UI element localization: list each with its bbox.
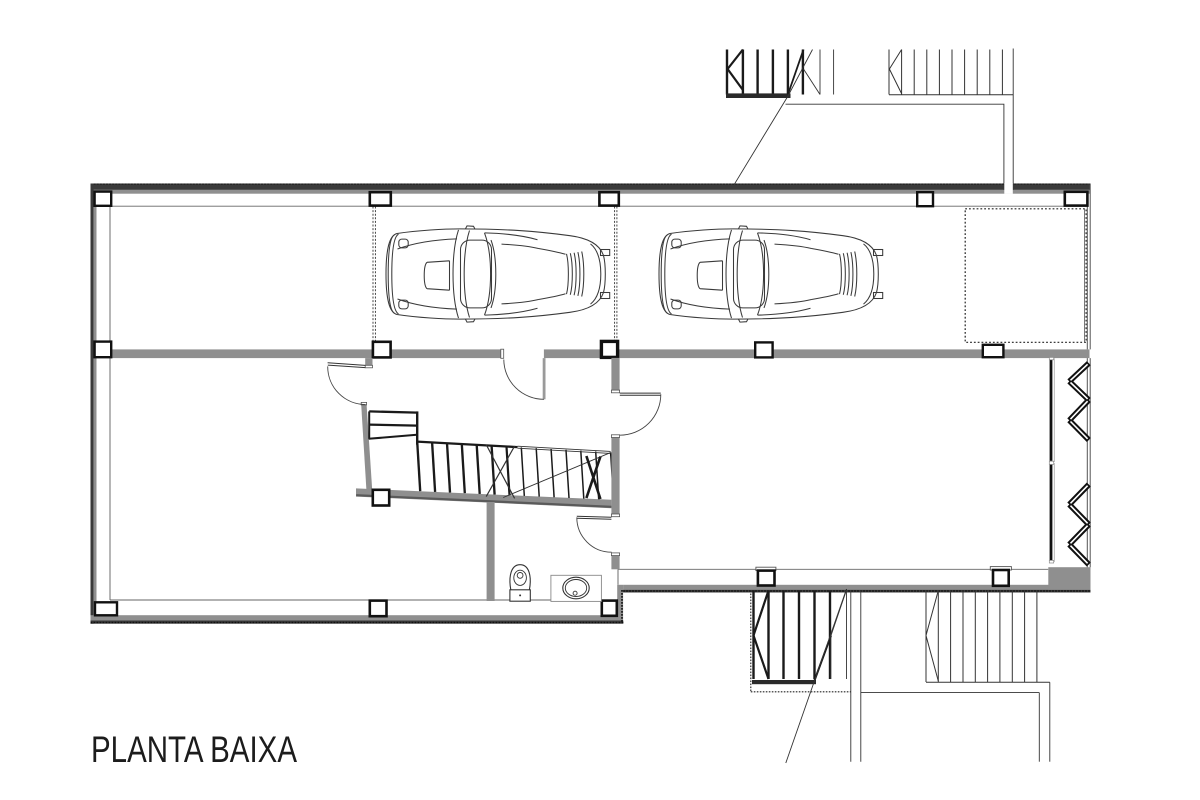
- svg-text:PLANTA BAIXA: PLANTA BAIXA: [91, 728, 297, 770]
